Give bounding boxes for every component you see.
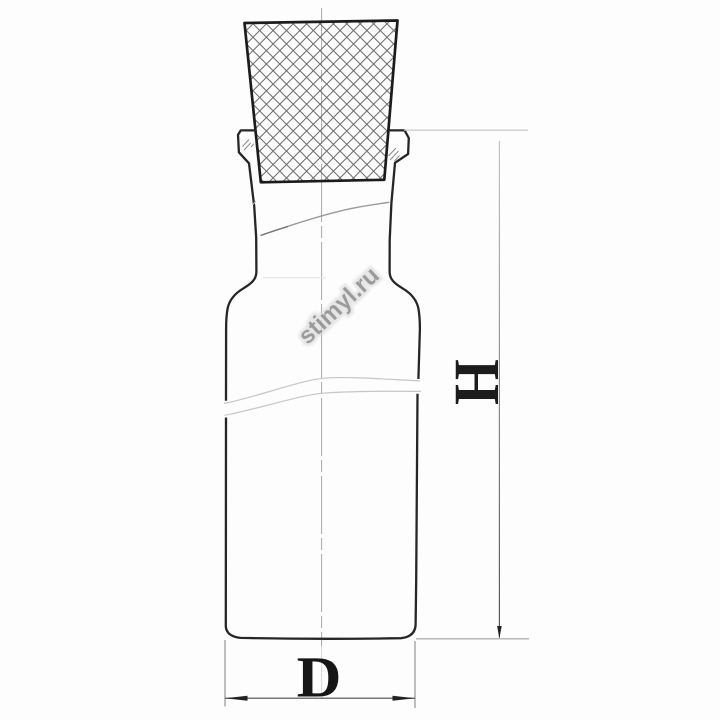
svg-text:stimyl.ru: stimyl.ru (293, 262, 385, 350)
svg-text:H: H (441, 359, 512, 405)
svg-text:D: D (297, 645, 342, 710)
